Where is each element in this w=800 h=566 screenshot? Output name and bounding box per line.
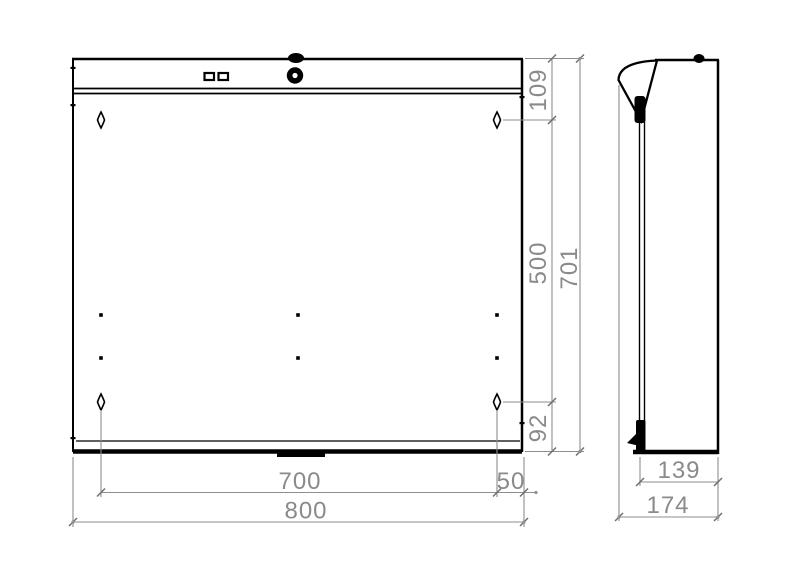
dim-label-hole-to-bottom: 92 [525, 414, 552, 443]
fastener-dots [99, 313, 499, 360]
side-top-knob-icon [694, 54, 705, 63]
mounting-hole-bottom-left [98, 394, 105, 410]
hinge-tick-left-2 [71, 104, 76, 106]
hinge-tick-left-1 [71, 67, 76, 69]
dim-label-hole-span-vertical: 500 [525, 241, 552, 284]
lock-keyhole-icon [292, 73, 297, 78]
dot-50-overshoot [534, 491, 537, 494]
hinge-tick-right-1 [520, 96, 525, 98]
mounting-hole-bottom-right [494, 394, 501, 410]
dot-left-upper [99, 313, 103, 317]
dot-left-lower [99, 356, 103, 360]
side-bottom-bracket [636, 420, 646, 453]
dot-center-lower [296, 356, 300, 360]
hinge-tick-left-3 [71, 437, 76, 439]
dim-label-body-depth: 139 [657, 457, 700, 484]
dim-label-overall-depth: 174 [646, 492, 689, 519]
dot-right-upper [495, 313, 499, 317]
side-handle-block [635, 96, 646, 123]
mounting-hole-top-left [98, 112, 105, 128]
dot-174-left [617, 515, 620, 518]
vent-slot-right [219, 73, 229, 80]
technical-drawing-canvas: 109 500 701 92 700 50 800 139 174 [0, 0, 800, 566]
mounting-holes [98, 112, 501, 410]
front-view [71, 53, 525, 457]
dot-701-top [578, 57, 581, 60]
drawing-svg: 109 500 701 92 700 50 800 139 174 [0, 0, 800, 566]
dim-label-hole-to-edge: 50 [497, 468, 526, 495]
dot-800-right [522, 520, 525, 523]
vent-slot-left [205, 73, 215, 80]
side-view [619, 54, 720, 454]
dim-label-overall-width: 800 [284, 498, 327, 525]
mounting-hole-top-right [494, 112, 501, 128]
dot-701-bottom [578, 450, 581, 453]
dim-label-overall-height: 701 [556, 246, 583, 289]
top-knob-icon [288, 53, 304, 63]
dot-right-lower [495, 356, 499, 360]
dimensions: 109 500 701 92 700 50 800 139 174 [69, 55, 722, 528]
dot-center-upper [296, 313, 300, 317]
front-bottom-center-lip [277, 454, 325, 458]
dim-label-top-to-hole: 109 [525, 68, 552, 111]
hinge-tick-right-2 [520, 422, 525, 424]
dot-174-right [716, 515, 719, 518]
hinge-ticks [71, 67, 525, 439]
dim-label-hole-span-horizontal: 700 [278, 468, 321, 495]
dot-800-left [71, 520, 74, 523]
